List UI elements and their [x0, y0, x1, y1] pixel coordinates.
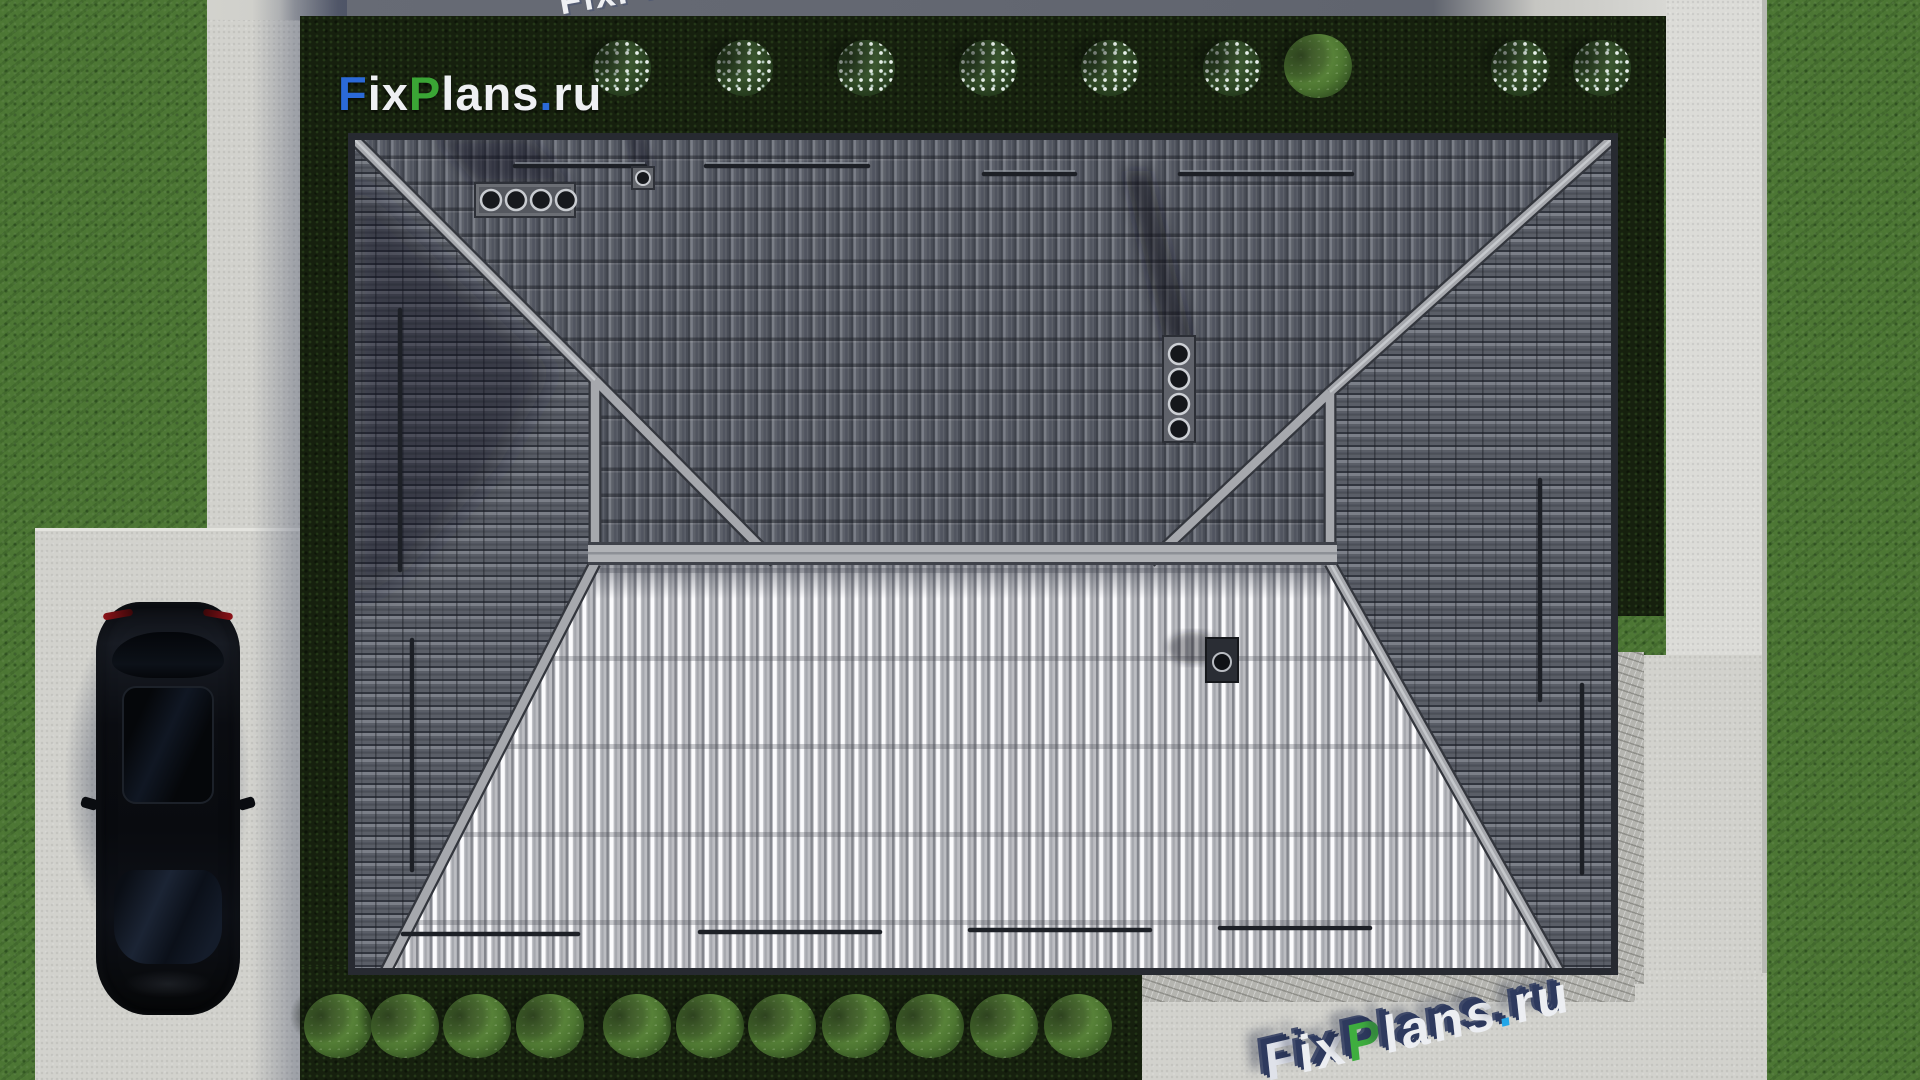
letter-segment: P	[1344, 1007, 1387, 1074]
vent-single	[632, 167, 654, 189]
watermark-top-clip: FixPlans.ru	[552, 0, 842, 30]
fixplans-logo: FixPlans.ru	[338, 70, 602, 117]
letter-segment: ix	[368, 67, 409, 120]
watermark-top: FixPlans.ru	[556, 0, 775, 20]
letter-segment: F	[338, 67, 368, 120]
letter-segment: P	[409, 67, 441, 120]
hedge-bottom	[300, 966, 1142, 1080]
letter-segment: .	[539, 67, 553, 120]
letter-segment: FixPlans	[555, 0, 724, 22]
letter-segment: ix	[1296, 1016, 1350, 1080]
hedge-right	[1612, 16, 1664, 616]
car-sunroof	[122, 686, 214, 804]
car	[96, 602, 240, 1015]
render-canvas: FixPlans.ru FixPlans.ru FixPlans.ru	[0, 0, 1920, 1080]
car-windshield	[114, 870, 222, 964]
car-rear-window	[112, 632, 224, 678]
car-hood-highlight	[124, 970, 212, 998]
vent-block-4pipe	[475, 183, 576, 217]
vent-south	[1206, 638, 1238, 682]
gravel-strip-vertical	[1618, 652, 1644, 984]
chimney-4pipe	[1163, 336, 1195, 442]
walkway-right	[1666, 0, 1767, 662]
hip-roof	[348, 133, 1618, 975]
letter-segment: lans	[441, 67, 539, 120]
roof-svg	[348, 133, 1618, 975]
main-ridge	[588, 542, 1337, 565]
ridge-shade	[595, 563, 1330, 599]
hedge-left	[300, 16, 352, 1080]
letter-segment: ru	[553, 67, 602, 120]
